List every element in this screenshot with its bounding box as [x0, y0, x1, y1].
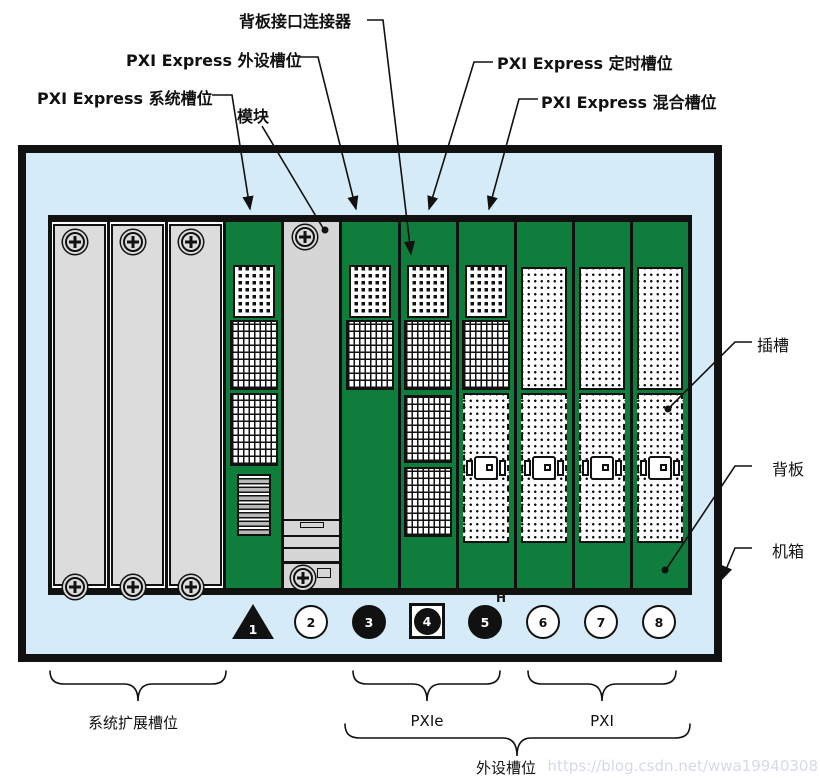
screw-icon	[123, 232, 143, 252]
hybrid-superscript: H	[496, 591, 506, 605]
filler-panel-2	[110, 222, 165, 588]
screw-icon	[295, 227, 315, 247]
module-latch	[317, 568, 331, 578]
connector-tab	[466, 460, 473, 476]
pxi-chassis-diagram: 1 2 3 4 5 H 6 7 8	[0, 0, 820, 778]
backplane-connector	[407, 265, 449, 318]
label-pxie-peripheral-slot: PXI Express 外设槽位	[126, 47, 302, 71]
slot-marker-7: 7	[584, 605, 618, 639]
slot-3-pxie-peripheral	[342, 222, 397, 588]
connector-body	[590, 456, 614, 480]
connector-tab	[582, 460, 589, 476]
slot-5-hybrid	[459, 222, 514, 588]
connector-tab	[615, 460, 622, 476]
blank-panel	[169, 224, 222, 586]
label-backplane: 背板	[772, 456, 804, 480]
backplane-connector	[465, 265, 507, 318]
backplane-connector	[233, 265, 275, 318]
connector-pin	[602, 464, 609, 471]
module-edge-line	[284, 547, 339, 549]
screw-icon	[181, 232, 201, 252]
label-module: 模块	[237, 103, 269, 127]
perforated-slot-area	[521, 267, 567, 390]
slot-number: 2	[307, 615, 316, 630]
backplane-connector	[346, 320, 394, 390]
slot-number: 1	[249, 622, 258, 637]
backplane-connector	[230, 393, 278, 466]
screw-icon	[65, 577, 85, 597]
pxi-connector	[638, 455, 682, 481]
label-pxie-system-slot: PXI Express 系统槽位	[37, 85, 213, 109]
backplane-connector	[404, 467, 452, 537]
backplane-connector	[404, 320, 452, 390]
slot-number: 4	[423, 614, 432, 629]
connector-tab	[557, 460, 564, 476]
connector-body	[532, 456, 556, 480]
label-system-expansion-slots: 系统扩展槽位	[60, 712, 206, 733]
slot-number: 7	[597, 615, 606, 630]
blank-panel	[111, 224, 164, 586]
connector-body	[648, 456, 672, 480]
power-connector	[237, 474, 271, 536]
module-edge-line	[284, 519, 339, 521]
timing-slot-symbol: 4	[414, 608, 441, 635]
slot-marker-2: 2	[294, 605, 328, 639]
filler-panel-3	[168, 222, 223, 588]
slot-7-pxi-peripheral	[575, 222, 630, 588]
screw-icon	[65, 232, 85, 252]
module-handle	[300, 522, 324, 528]
label-slot: 插槽	[757, 332, 789, 356]
perforated-slot-area	[579, 267, 625, 390]
slot-marker-8: 8	[642, 605, 676, 639]
label-pxi-group: PXI	[572, 712, 632, 730]
slot-number: 5	[481, 615, 490, 630]
backplane-connector	[462, 320, 510, 390]
module-edge-line	[284, 535, 339, 537]
label-pxie-timing-slot: PXI Express 定时槽位	[497, 50, 673, 74]
connector-pin	[544, 464, 551, 471]
slot-4-system-timing	[401, 222, 456, 588]
label-pxie-group: PXIe	[397, 712, 457, 730]
filler-panel-1	[52, 222, 107, 588]
screw-icon	[293, 568, 313, 588]
screw-icon	[181, 577, 201, 597]
connector-tab	[673, 460, 680, 476]
module-edge-line	[284, 561, 339, 564]
label-chassis: 机箱	[772, 538, 804, 562]
slot-number: 3	[365, 615, 374, 630]
slot-number: 8	[655, 615, 664, 630]
pxi-connector	[580, 455, 624, 481]
pxi-connector	[522, 455, 566, 481]
backplane-connector	[349, 265, 391, 318]
slot-1-system	[226, 222, 281, 588]
connector-tab	[499, 460, 506, 476]
connector-body	[474, 456, 498, 480]
connector-pin	[660, 464, 667, 471]
pxi-connector	[464, 455, 508, 481]
blank-panel	[53, 224, 106, 586]
connector-tab	[524, 460, 531, 476]
backplane-connector	[230, 320, 278, 390]
screw-icon	[123, 577, 143, 597]
slot-marker-4-timing: 4	[409, 603, 445, 639]
perforated-slot-area	[637, 267, 683, 390]
connector-tab	[640, 460, 647, 476]
slot-marker-3: 3	[352, 605, 386, 639]
slot-marker-6: 6	[526, 605, 560, 639]
label-pxie-hybrid-slot: PXI Express 混合槽位	[541, 89, 717, 113]
slot-marker-5-hybrid: 5	[468, 605, 502, 639]
label-backplane-connector: 背板接口连接器	[239, 8, 351, 32]
slot-6-pxi-peripheral	[517, 222, 572, 588]
watermark-url: https://blog.csdn.net/wwa19940308	[547, 757, 818, 775]
backplane-connector	[404, 395, 452, 463]
card-cage	[48, 215, 692, 595]
slot-8-pxi-peripheral	[633, 222, 688, 588]
slot-number: 6	[539, 615, 548, 630]
connector-pin	[486, 464, 493, 471]
slot-2-installed-module	[284, 222, 339, 588]
